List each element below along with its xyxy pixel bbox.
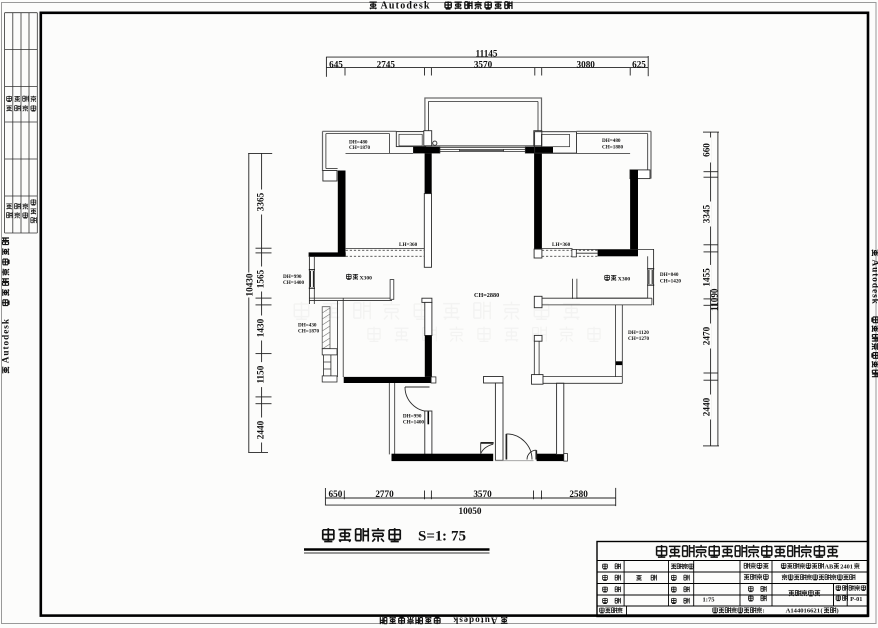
svg-text:(: (: [821, 608, 823, 615]
svg-text:1455: 1455: [702, 268, 712, 287]
svg-text:X300: X300: [618, 277, 631, 283]
svg-text:3080: 3080: [577, 59, 596, 69]
svg-text:1:75: 1:75: [703, 597, 716, 604]
svg-text:11145: 11145: [476, 49, 498, 59]
svg-text:2401: 2401: [840, 564, 853, 571]
svg-text:625: 625: [632, 59, 646, 69]
svg-text:3345: 3345: [702, 204, 712, 223]
svg-text:650: 650: [329, 489, 343, 499]
svg-text:CH=1270: CH=1270: [628, 336, 650, 342]
svg-text:Autodesk: Autodesk: [452, 616, 497, 626]
svg-text:P-01: P-01: [850, 596, 862, 603]
svg-text:Autodesk: Autodesk: [1, 318, 11, 363]
svg-text::: :: [763, 608, 765, 615]
svg-text:10050: 10050: [459, 506, 482, 516]
svg-text:): ): [837, 608, 839, 615]
svg-text:11090: 11090: [710, 288, 720, 311]
svg-text:DH=990: DH=990: [283, 274, 302, 280]
svg-text:X300: X300: [360, 276, 373, 282]
svg-text:Autodesk: Autodesk: [381, 0, 431, 11]
svg-text:CH=2880: CH=2880: [474, 292, 499, 299]
svg-text:1565: 1565: [256, 269, 266, 288]
svg-text:10430: 10430: [245, 273, 255, 296]
svg-text:3365: 3365: [256, 192, 266, 211]
svg-text:CH=1880: CH=1880: [602, 144, 624, 150]
svg-text:AB: AB: [825, 564, 835, 571]
svg-text:CH=1400: CH=1400: [403, 420, 425, 426]
svg-text:A144016621: A144016621: [786, 608, 820, 615]
svg-text:2770: 2770: [375, 489, 394, 499]
svg-text:1430: 1430: [256, 318, 266, 337]
svg-text:LH=360: LH=360: [552, 242, 571, 248]
svg-text:645: 645: [329, 59, 343, 69]
svg-text:3570: 3570: [473, 489, 492, 499]
svg-text::: :: [442, 529, 447, 545]
svg-text:CH=1870: CH=1870: [298, 329, 320, 335]
svg-text:2745: 2745: [377, 59, 396, 69]
svg-text:DH=1120: DH=1120: [628, 330, 649, 336]
svg-text:LH=360: LH=360: [399, 242, 418, 248]
svg-text:DH=430: DH=430: [298, 323, 317, 329]
svg-text:CH=1420: CH=1420: [660, 278, 682, 284]
svg-text:3570: 3570: [474, 59, 493, 69]
svg-text:2440: 2440: [256, 420, 266, 439]
svg-text:2580: 2580: [569, 489, 588, 499]
svg-text:DH=480: DH=480: [602, 138, 621, 144]
svg-text:2440: 2440: [702, 397, 712, 416]
svg-text:CH=1400: CH=1400: [283, 280, 305, 286]
svg-text:75: 75: [451, 529, 466, 545]
svg-text:1150: 1150: [256, 365, 266, 383]
svg-text:660: 660: [702, 143, 712, 157]
svg-text:DH=840: DH=840: [660, 272, 679, 278]
svg-text:S=1: S=1: [418, 529, 442, 545]
svg-text:2470: 2470: [702, 326, 712, 345]
svg-text:CH=1870: CH=1870: [349, 145, 371, 151]
svg-text:DH=990: DH=990: [403, 414, 422, 420]
svg-text:Autodesk: Autodesk: [870, 260, 878, 305]
